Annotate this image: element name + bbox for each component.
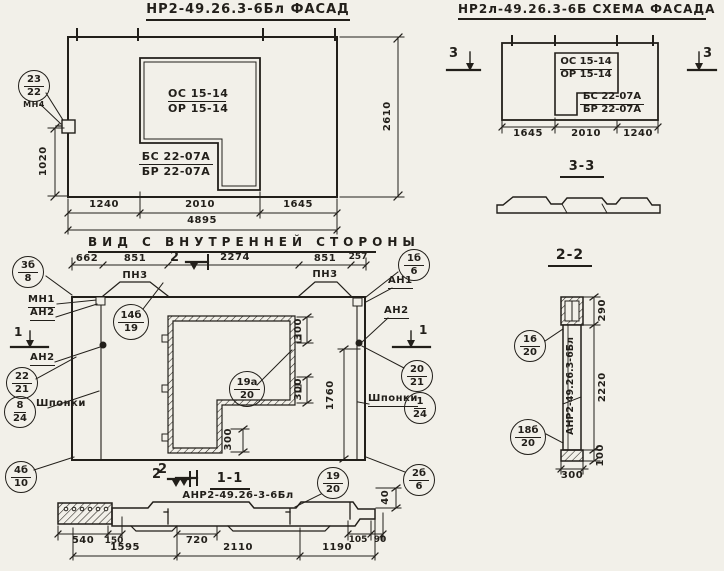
inner-dim-1760: 1760 xyxy=(326,373,337,417)
facade-window-mark-1: ОС 15-14 xyxy=(168,88,226,102)
inner-label-an2r: АН2 xyxy=(384,306,409,319)
callout-16-20: 16 20 xyxy=(514,330,546,362)
callout-20-21: 20 21 xyxy=(401,360,433,392)
inner-dim-851a: 851 xyxy=(118,254,152,265)
callout-numerator: 1б xyxy=(404,254,424,266)
facade-dim-left: 1020 xyxy=(39,139,50,183)
callout-3b-8: 3б 8 xyxy=(12,256,44,288)
schema-dim-b2: 2010 xyxy=(564,129,608,140)
callout-numerator: 19а xyxy=(234,378,261,390)
schema-section-mark-left: 3 xyxy=(449,47,458,61)
facade-position-callout: 23 22 xyxy=(18,70,50,102)
s11-dim-40: 40 xyxy=(381,485,392,509)
schema-balcony-mark-1: БС 22-07А xyxy=(580,92,644,105)
inner-label-an2a: АН2 xyxy=(30,308,55,321)
callout-22-21: 22 21 xyxy=(6,367,38,399)
inner-dim-2274: 2274 xyxy=(213,253,257,264)
facade-dim-right: 2610 xyxy=(383,94,394,138)
schema-balcony-mark-2: БР 22-07А xyxy=(580,105,644,116)
inner-label-shponki-left: Шпонки xyxy=(36,399,86,410)
callout-numerator: 23 xyxy=(24,75,44,87)
callout-19-20: 19 20 xyxy=(317,467,349,499)
inner-dim-300c: 300 xyxy=(224,417,235,461)
inner-dim-662: 662 xyxy=(70,254,104,265)
callout-4b-10: 4б 10 xyxy=(5,461,37,493)
callout-numerator: 22 xyxy=(12,372,32,384)
callout-denominator: 24 xyxy=(13,413,27,424)
callout-denominator: 20 xyxy=(240,390,254,401)
callout-numerator: 2б xyxy=(409,469,429,481)
callout-numerator: 18б xyxy=(515,426,542,438)
inner-view-lines xyxy=(11,255,430,486)
schema-dim-b1: 1645 xyxy=(506,129,550,140)
s22-dim-300: 300 xyxy=(556,471,588,482)
inner-mark-1-right: 1 xyxy=(419,324,427,337)
callout-denominator: 19 xyxy=(124,323,138,334)
section22-panel-label: АНР2-49.26.3-6Бл xyxy=(566,320,576,452)
section-1-1-title: 1-1 xyxy=(210,472,250,490)
callout-numerator: 19 xyxy=(323,472,343,484)
facade-dim-b3: 1645 xyxy=(278,200,318,211)
section11-panel-label: АНР2-49.26-3-6Бл xyxy=(182,491,294,502)
callout-1-24: 1 24 xyxy=(404,392,436,424)
s11-dim-720: 720 xyxy=(180,536,214,547)
section11-mark-2: 2 xyxy=(152,468,161,482)
facade-dim-b2: 2010 xyxy=(180,200,220,211)
schema-window-mark-2: ОР 15-14 xyxy=(560,70,612,81)
callout-denominator: 8 xyxy=(25,273,32,284)
callout-14b-19: 14б 19 xyxy=(113,304,149,340)
s11-dim-2110: 2110 xyxy=(218,543,258,554)
inner-label-mn1: МН1 xyxy=(28,295,55,308)
callout-denominator: 21 xyxy=(15,384,29,395)
callout-19a-20: 19а 20 xyxy=(229,371,265,407)
inner-dim-300a: 300 xyxy=(294,307,305,351)
callout-denominator: 6 xyxy=(416,481,423,492)
facade-title: НР2-49.26.3-6Бл ФАСАД xyxy=(146,3,350,21)
inner-dim-851b: 851 xyxy=(308,254,342,265)
inner-mark-1-left: 1 xyxy=(14,326,22,339)
callout-denominator: 21 xyxy=(410,377,424,388)
s11-dim-540: 540 xyxy=(66,536,100,547)
callout-numerator: 4б xyxy=(11,466,31,478)
s22-dim-2220: 2220 xyxy=(598,365,609,409)
s22-dim-290: 290 xyxy=(598,288,609,332)
callout-denominator: 6 xyxy=(411,266,418,277)
facade-dim-b1: 1240 xyxy=(84,200,124,211)
s11-dim-1190: 1190 xyxy=(317,543,357,554)
callout-1b-6: 1б 6 xyxy=(398,249,430,281)
callout-denominator: 20 xyxy=(326,484,340,495)
facade-balcony-mark-1: БС 22-07А xyxy=(139,151,213,165)
inner-label-an2b: АН2 xyxy=(30,353,55,366)
callout-8-24: 8 24 xyxy=(4,396,36,428)
callout-numerator: 20 xyxy=(407,365,427,377)
section-2-2-title: 2-2 xyxy=(548,248,592,267)
callout-18b-20: 18б 20 xyxy=(510,419,546,455)
callout-numerator: 16 xyxy=(520,335,540,347)
blueprint-sheet: НР2-49.26.3-6Бл ФАСАД ОС 15-14 ОР 15-14 … xyxy=(0,0,724,571)
schema-section-mark-right: 3 xyxy=(703,47,712,61)
facade-balcony-mark-2: БР 22-07А xyxy=(139,166,213,178)
s22-dim-100: 100 xyxy=(596,433,607,477)
callout-numerator: 8 xyxy=(14,401,27,413)
inner-dim-257: 257 xyxy=(343,253,373,262)
facade-anchor-label: МН4 xyxy=(16,101,52,109)
callout-numerator: 3б xyxy=(18,261,38,273)
callout-denominator: 24 xyxy=(413,409,427,420)
drawing-linework xyxy=(0,0,724,571)
inner-pn3-left: ПН3 xyxy=(120,271,150,282)
schema-dim-b3: 1240 xyxy=(616,129,660,140)
schema-title: НР2л-49.26.3-6Б СХЕМА ФАСАДА xyxy=(458,3,706,20)
callout-denominator: 10 xyxy=(14,478,28,489)
s11-dim-1595: 1595 xyxy=(105,543,145,554)
callout-numerator: 1 xyxy=(414,397,427,409)
callout-denominator: 20 xyxy=(523,347,537,358)
inner-dim-300b: 300 xyxy=(294,367,305,411)
schema-window-mark-1: ОС 15-14 xyxy=(560,57,612,70)
s11-dim-90: 90 xyxy=(368,536,392,545)
facade-window-mark-2: ОР 15-14 xyxy=(168,103,226,115)
callout-numerator: 14б xyxy=(118,311,145,323)
inner-view-title: ВИД С ВНУТРЕННЕЙ СТОРОНЫ xyxy=(88,236,376,253)
callout-denominator: 22 xyxy=(27,87,41,98)
inner-pn3-right: ПН3 xyxy=(310,270,340,281)
section-3-3-title: 3-3 xyxy=(560,160,604,178)
callout-2b-6: 2б 6 xyxy=(403,464,435,496)
callout-denominator: 20 xyxy=(521,438,535,449)
facade-dim-total: 4895 xyxy=(182,216,222,227)
inner-mark-2-top: 2 xyxy=(170,251,179,265)
